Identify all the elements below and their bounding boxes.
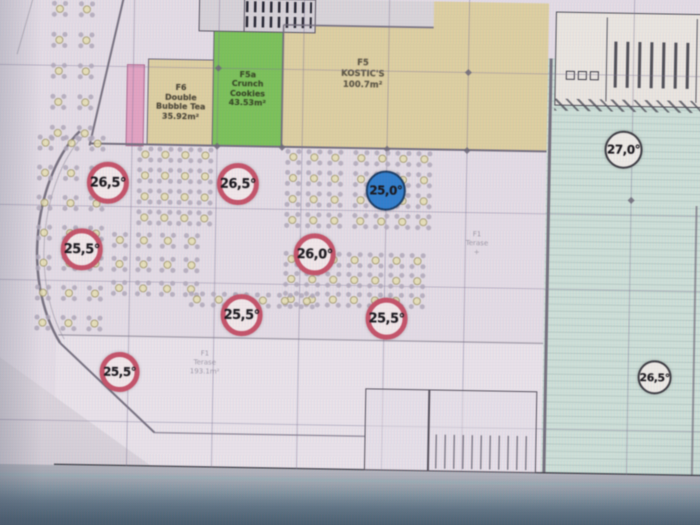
floor-plan: F6 Double Bubble Tea 35.92m² F5a Crunch … <box>0 0 700 525</box>
screen-photo: F6 Double Bubble Tea 35.92m² F5a Crunch … <box>0 0 700 525</box>
dimension-text-smudges <box>0 0 700 525</box>
